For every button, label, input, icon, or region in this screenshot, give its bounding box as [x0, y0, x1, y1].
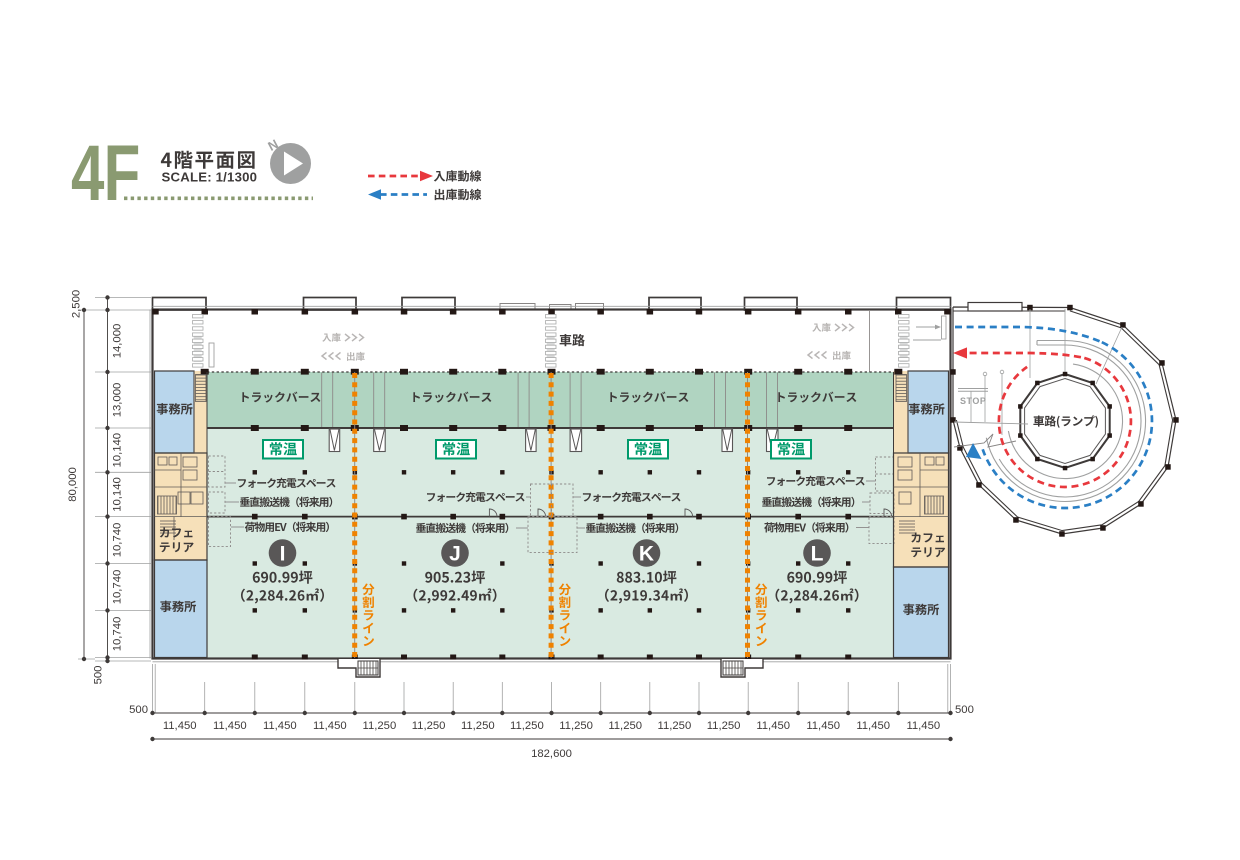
svg-text:11,250: 11,250: [412, 720, 446, 732]
svg-text:STOP: STOP: [960, 396, 986, 406]
svg-text:11,450: 11,450: [313, 720, 347, 732]
svg-text:14,000: 14,000: [112, 324, 124, 359]
svg-text:J: J: [449, 543, 461, 566]
svg-text:11,450: 11,450: [263, 720, 297, 732]
svg-text:I: I: [280, 543, 286, 566]
svg-text:10,740: 10,740: [112, 523, 124, 558]
svg-text:80,000: 80,000: [67, 467, 79, 502]
svg-text:11,450: 11,450: [756, 720, 790, 732]
svg-text:11,250: 11,250: [461, 720, 495, 732]
svg-text:182,600: 182,600: [531, 748, 572, 760]
svg-text:500: 500: [93, 666, 105, 685]
svg-text:11,250: 11,250: [559, 720, 593, 732]
svg-text:11,250: 11,250: [608, 720, 642, 732]
svg-text:11,250: 11,250: [658, 720, 692, 732]
svg-text:500: 500: [955, 704, 974, 716]
svg-text:10,140: 10,140: [112, 433, 124, 468]
svg-text:11,250: 11,250: [707, 720, 741, 732]
svg-text:4F: 4F: [71, 128, 140, 217]
svg-text:13,000: 13,000: [112, 383, 124, 418]
svg-text:11,450: 11,450: [806, 720, 840, 732]
svg-text:11,250: 11,250: [363, 720, 397, 732]
svg-text:L: L: [811, 543, 824, 566]
svg-text:11,450: 11,450: [163, 720, 197, 732]
svg-text:10,140: 10,140: [112, 477, 124, 512]
svg-text:2,500: 2,500: [71, 290, 83, 318]
svg-text:500: 500: [129, 704, 148, 716]
svg-text:11,450: 11,450: [856, 720, 890, 732]
svg-text:10,740: 10,740: [112, 570, 124, 605]
svg-text:SCALE: 1/1300: SCALE: 1/1300: [162, 170, 258, 185]
svg-text:11,450: 11,450: [213, 720, 247, 732]
svg-text:11,250: 11,250: [510, 720, 544, 732]
svg-text:11,450: 11,450: [906, 720, 940, 732]
svg-text:10,740: 10,740: [112, 617, 124, 652]
svg-text:K: K: [639, 543, 654, 566]
